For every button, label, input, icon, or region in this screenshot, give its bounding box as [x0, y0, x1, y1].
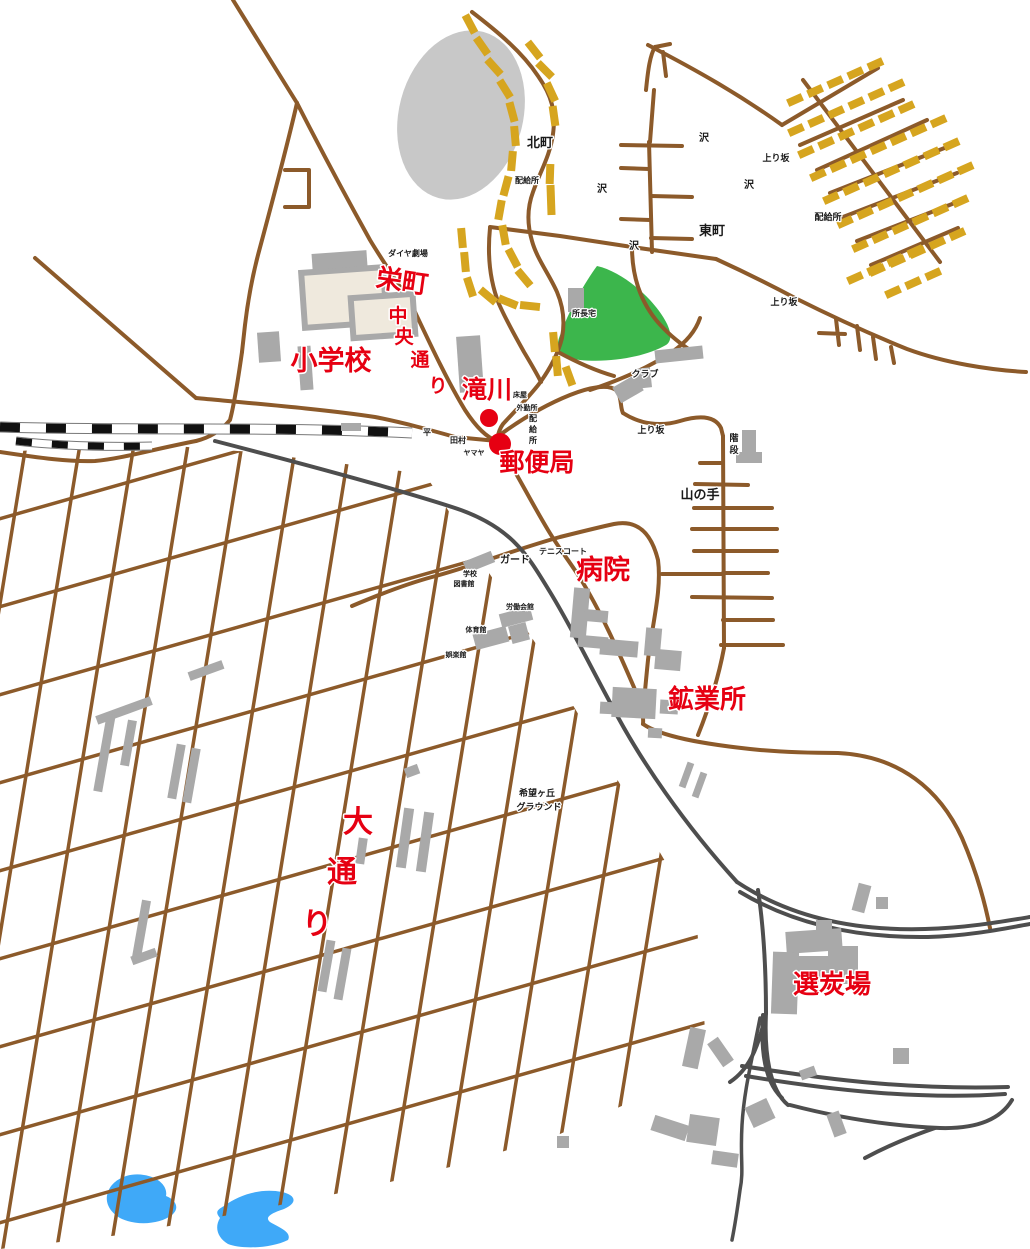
- building: [692, 772, 707, 799]
- label-takikawa: 滝川: [462, 376, 512, 404]
- label-kitamachi: 北町: [527, 135, 553, 150]
- label-tamura: 田村: [450, 435, 466, 445]
- house-row-dash: [902, 155, 920, 169]
- label-sawa-3: 沢: [629, 239, 640, 252]
- building: [744, 1098, 775, 1128]
- label-kibogaoka: 希望ヶ丘: [519, 787, 555, 798]
- building: [876, 897, 888, 909]
- house-row-dash: [457, 228, 467, 249]
- grid-street: [270, 420, 408, 1249]
- label-gaikinjo: 外勤所: [517, 403, 538, 412]
- house-row-dash: [884, 285, 902, 299]
- railway-branch-lines-part: [758, 890, 766, 1013]
- building: [416, 812, 434, 873]
- building: [654, 346, 703, 364]
- house-row-dash: [460, 252, 470, 273]
- house-row-dash: [549, 332, 559, 353]
- house-row-dash: [520, 301, 541, 311]
- map-svg: 北町配給所沢沢沢沢東町上り坂配給所上り坂ダイヤ劇場所長宅クラブ床屋外勤所平田村ヤ…: [0, 0, 1030, 1249]
- label-haikyujo-higashi: 配給所: [814, 211, 841, 222]
- grid-street: [0, 1104, 730, 1249]
- road-network-part: [242, 103, 297, 352]
- label-noborizaka-2: 上り坂: [770, 296, 798, 307]
- label-higashimachi: 東町: [699, 223, 725, 238]
- building: [599, 638, 638, 657]
- grid-street: [0, 752, 730, 970]
- road-network-part: [621, 145, 692, 239]
- house-row-dash: [943, 137, 961, 151]
- house-row-dash: [500, 175, 513, 196]
- road-network-part: [643, 724, 990, 928]
- label-daiya-gekijo: ダイヤ劇場: [388, 248, 428, 258]
- building: [648, 728, 663, 739]
- house-row-dash: [937, 170, 955, 184]
- railway-branch-lines-part: [865, 1128, 935, 1158]
- label-chuo-dori: 中: [388, 304, 407, 327]
- grid-street: [0, 420, 138, 1249]
- label-yamaya: ヤマヤ: [464, 449, 485, 457]
- house-row-dash: [916, 179, 934, 193]
- label-sawa-1: 沢: [699, 131, 710, 144]
- label-club: クラブ: [631, 368, 658, 379]
- label-chuo-dori: 央: [394, 325, 414, 348]
- house-row-dash: [827, 105, 845, 119]
- building: [132, 900, 151, 959]
- house-row-dash: [494, 199, 505, 220]
- house-row-dash: [505, 247, 521, 268]
- building: [682, 1027, 706, 1069]
- house-row-dash: [525, 40, 544, 61]
- railway-branch-lines-part: [790, 1100, 1012, 1128]
- house-row-dash: [515, 268, 534, 288]
- grid-street: [162, 420, 300, 1249]
- label-haikyujo-yubin: 所: [528, 435, 537, 445]
- building: [341, 423, 361, 431]
- label-haikyujo-yubin: 給: [529, 424, 538, 434]
- house-row-dash: [923, 146, 941, 160]
- label-yamanote: 山の手: [680, 487, 719, 502]
- building: [711, 1150, 739, 1167]
- house-row-dash: [931, 203, 949, 217]
- building: [584, 609, 609, 623]
- house-row-dash: [463, 276, 477, 297]
- building: [557, 1136, 569, 1148]
- house-row-dash: [787, 123, 805, 137]
- house-row-dash: [546, 185, 555, 215]
- town-map: 北町配給所沢沢沢沢東町上り坂配給所上り坂ダイヤ劇場所長宅クラブ床屋外勤所平田村ヤ…: [0, 0, 1030, 1249]
- house-row-dash: [552, 356, 562, 377]
- label-noborizaka-1: 上り坂: [762, 152, 790, 163]
- house-row-dash: [562, 365, 576, 387]
- label-taira: 平: [423, 428, 431, 437]
- label-noborizaka-3: 上り坂: [637, 424, 665, 435]
- house-row-dash: [888, 78, 906, 92]
- building: [852, 883, 872, 913]
- building: [654, 649, 682, 671]
- labels-layer: 北町配給所沢沢沢沢東町上り坂配給所上り坂ダイヤ劇場所長宅クラブ床屋外勤所平田村ヤ…: [291, 131, 872, 999]
- house-row-dash: [952, 194, 970, 208]
- label-sawa-4: 沢: [744, 178, 755, 191]
- building: [893, 1048, 909, 1064]
- label-o-dori: 通: [327, 856, 357, 889]
- building: [707, 1037, 734, 1067]
- label-chuo-dori: り: [428, 376, 447, 397]
- house-row-dash: [807, 114, 825, 128]
- label-sentanba: 選炭場: [793, 969, 871, 999]
- building: [650, 1115, 689, 1141]
- house-row-dash: [924, 267, 942, 281]
- house-row-dash: [882, 164, 900, 178]
- label-taiikukan: 体育館: [466, 625, 487, 634]
- road-network-part: [646, 44, 670, 142]
- road-network-part: [648, 45, 782, 125]
- house-row-dash: [786, 93, 804, 107]
- building: [600, 702, 617, 715]
- label-toshokan: 図書館: [454, 579, 475, 588]
- house-row-dash: [957, 161, 975, 175]
- house-row-dash: [847, 96, 865, 110]
- label-gorakukan: 娯楽館: [446, 650, 467, 659]
- road-network-part: [233, 0, 297, 103]
- grid-street: [54, 420, 192, 1249]
- grid-street: [0, 928, 730, 1146]
- label-shogakko: 小学校: [291, 345, 372, 376]
- building: [463, 551, 495, 573]
- road-network-part: [490, 227, 716, 259]
- label-sawa-2: 沢: [597, 182, 608, 195]
- grid-street: [378, 420, 516, 1249]
- building: [93, 714, 115, 792]
- label-kaidan: 階: [729, 432, 738, 443]
- house-row-dash: [826, 75, 844, 89]
- building: [679, 762, 694, 789]
- house-row-dash: [546, 164, 555, 184]
- street-grid: [0, 312, 732, 1249]
- label-gakko: 学校: [463, 569, 478, 578]
- grid-street: [216, 420, 354, 1249]
- label-haikyujo-yubin: 配: [529, 414, 537, 423]
- building: [257, 331, 281, 362]
- label-byoin: 病院: [576, 554, 630, 585]
- house-row-dash: [904, 276, 922, 290]
- building: [182, 748, 200, 804]
- house-row-dash: [549, 106, 560, 127]
- label-ground: グラウンド: [516, 801, 561, 812]
- label-chuo-dori: 通: [410, 349, 430, 371]
- road-network-part: [723, 436, 724, 648]
- label-kaidan: 段: [729, 444, 739, 455]
- house-row-dash: [930, 114, 948, 128]
- house-row-dash: [896, 188, 914, 202]
- building: [355, 838, 368, 865]
- label-gard: ガード: [500, 553, 530, 566]
- label-o-dori: り: [302, 908, 332, 941]
- building: [334, 948, 352, 1001]
- building: [826, 1111, 846, 1138]
- label-shochotaku: 所長宅: [571, 308, 596, 318]
- house-row-dash: [846, 271, 864, 285]
- building: [167, 744, 185, 800]
- label-kogyosho: 鉱業所: [668, 684, 746, 714]
- grid-street: [432, 420, 570, 1249]
- poi-dot: [480, 409, 498, 427]
- label-o-dori: 大: [343, 806, 373, 839]
- building: [611, 687, 657, 719]
- building: [736, 452, 762, 463]
- building: [816, 920, 832, 936]
- house-row-dash: [867, 87, 885, 101]
- label-rodo-kaikan: 労働会館: [506, 602, 534, 611]
- building: [686, 1114, 720, 1146]
- label-tokoya: 床屋: [513, 390, 527, 399]
- road-network-part: [285, 170, 309, 207]
- road-network-part: [35, 258, 196, 398]
- label-haikyujo-kita: 配給所: [515, 175, 539, 185]
- label-yubinkyoku: 郵便局: [499, 449, 574, 477]
- house-row-dash: [797, 145, 815, 159]
- railway-branch-lines-part: [742, 1066, 1008, 1087]
